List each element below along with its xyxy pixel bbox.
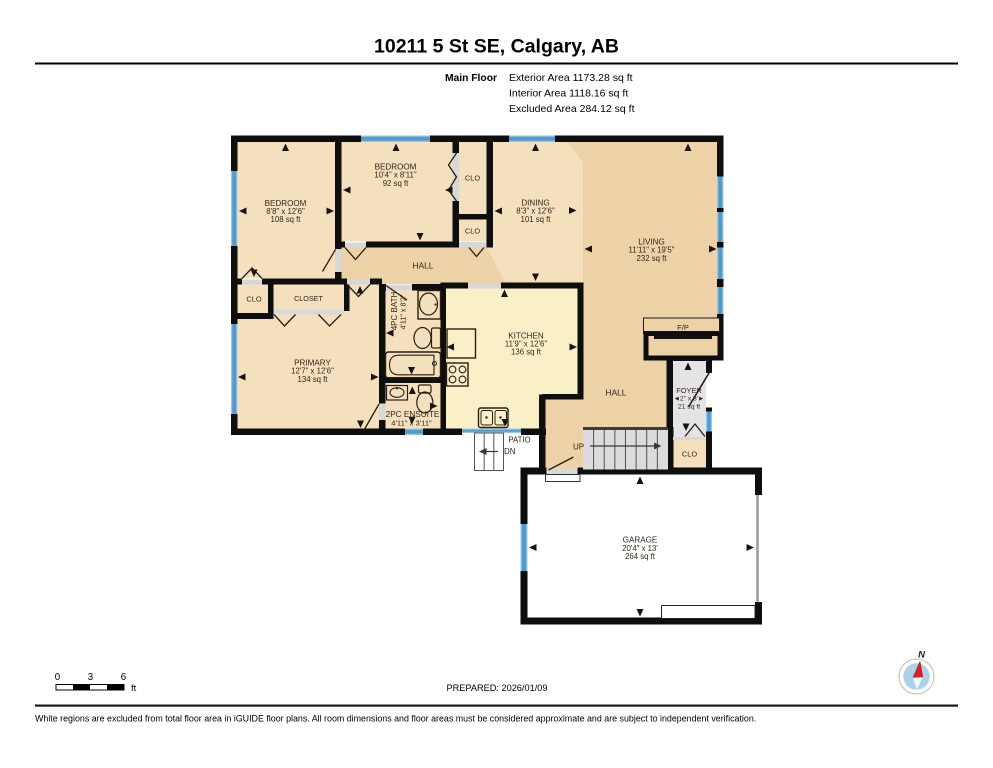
svg-text:ft: ft [131,683,137,694]
svg-text:Main Floor: Main Floor [445,73,497,84]
svg-text:PATIO: PATIO [508,435,530,444]
svg-text:◄2" x 8'►: ◄2" x 8'► [674,395,705,402]
svg-text:6: 6 [121,672,126,683]
svg-text:264 sq ft: 264 sq ft [625,552,656,561]
svg-text:136 sq ft: 136 sq ft [511,348,542,357]
svg-text:10211 5 St SE, Calgary, AB: 10211 5 St SE, Calgary, AB [374,36,619,58]
svg-text:DN: DN [504,447,516,456]
svg-text:HALL: HALL [606,388,627,398]
svg-text:0: 0 [55,672,61,683]
svg-text:FOYER: FOYER [676,386,701,395]
svg-text:108 sq ft: 108 sq ft [271,215,302,224]
svg-text:92 sq ft: 92 sq ft [383,179,409,188]
svg-text:4'11" x 8'2": 4'11" x 8'2" [399,294,408,329]
svg-text:CLO: CLO [465,173,480,182]
svg-text:Excluded Area 284.12 sq ft: Excluded Area 284.12 sq ft [509,103,635,115]
svg-text:CLO: CLO [465,227,480,236]
svg-text:21 sq ft: 21 sq ft [678,404,700,411]
svg-text:Interior Area 1118.16 sq ft: Interior Area 1118.16 sq ft [509,88,628,100]
svg-text:N: N [918,650,926,661]
svg-text:134 sq ft: 134 sq ft [298,375,329,384]
svg-text:Exterior Area 1173.28 sq ft: Exterior Area 1173.28 sq ft [509,72,633,84]
svg-text:CLO: CLO [682,449,697,458]
svg-text:101 sq ft: 101 sq ft [521,215,552,224]
svg-text:White regions are excluded fro: White regions are excluded from total fl… [35,714,756,724]
svg-text:CLOSET: CLOSET [294,294,323,303]
svg-text:232 sq ft: 232 sq ft [637,254,668,263]
svg-text:PREPARED: 2026/01/09: PREPARED: 2026/01/09 [447,683,548,693]
svg-text:CLO: CLO [246,294,261,303]
svg-text:F/P: F/P [677,323,689,332]
svg-text:3: 3 [88,672,93,683]
svg-text:HALL: HALL [413,260,434,270]
svg-text:UP: UP [573,442,584,451]
